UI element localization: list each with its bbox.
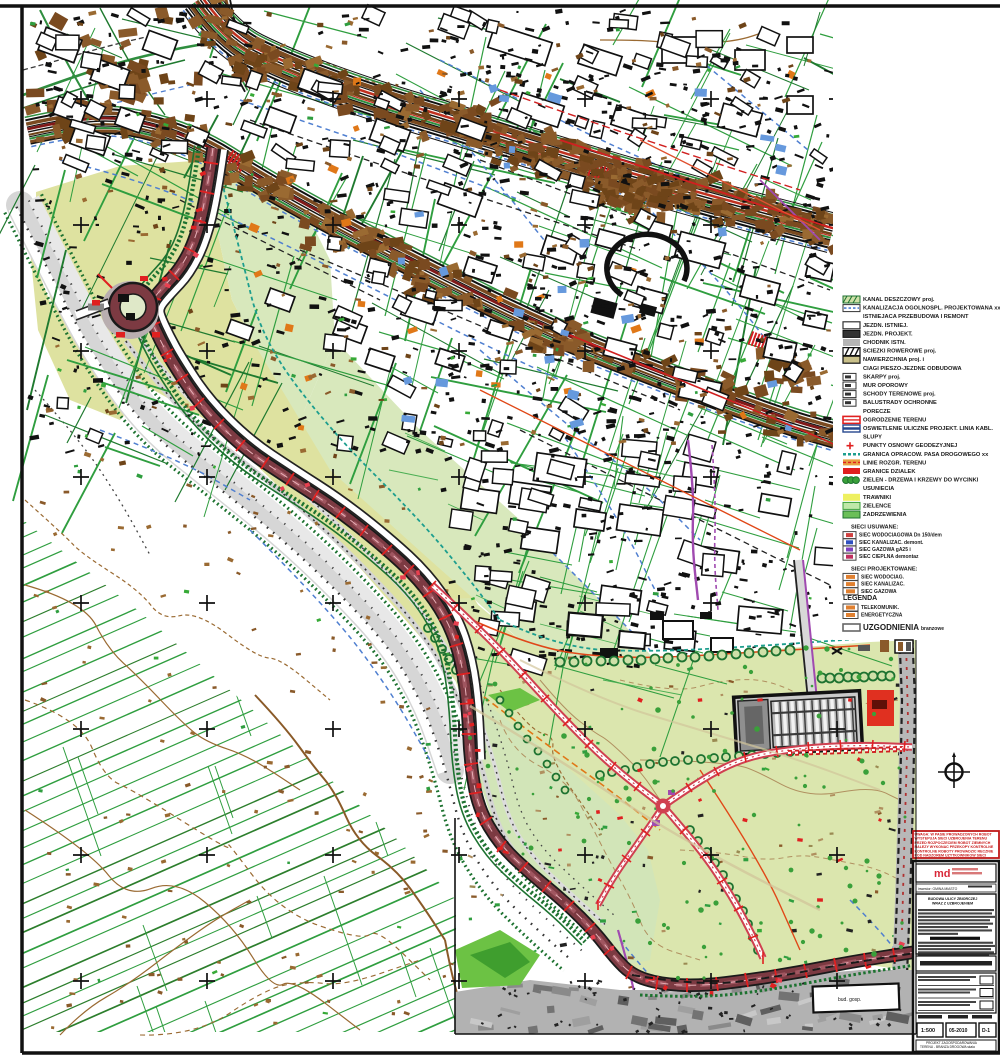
svg-text:BALUSTRADY OCHRONNE: BALUSTRADY OCHRONNE xyxy=(863,400,937,406)
svg-text:JEZDN. PROJEKT.: JEZDN. PROJEKT. xyxy=(863,331,913,337)
svg-text:SIECI PROJEKTOWANE:: SIECI PROJEKTOWANE: xyxy=(851,566,918,572)
svg-text:md: md xyxy=(934,868,951,880)
svg-text:CIAGI PIESZO-JEZDNE ODBUDOWA: CIAGI PIESZO-JEZDNE ODBUDOWA xyxy=(863,366,962,372)
svg-text:WRAZ Z UZBROJENIEM: WRAZ Z UZBROJENIEM xyxy=(932,902,973,906)
svg-text:ISTNIEJACA PRZEBUDOWA I REMONT: ISTNIEJACA PRZEBUDOWA I REMONT xyxy=(863,314,969,320)
svg-text:ZIELENCE: ZIELENCE xyxy=(863,503,891,509)
svg-text:CHODNIK ISTN.: CHODNIK ISTN. xyxy=(863,340,906,346)
svg-text:SLUPY: SLUPY xyxy=(863,435,882,441)
svg-text:LEGENDA: LEGENDA xyxy=(843,595,877,602)
svg-text:SIEC GAZOWA: SIEC GAZOWA xyxy=(861,589,897,595)
svg-text:SIEC KANALIZAC.: SIEC KANALIZAC. xyxy=(861,582,905,588)
svg-text:SIECI USUWANE:: SIECI USUWANE: xyxy=(851,525,899,531)
svg-text:SIEC GAZOWA gA25 i: SIEC GAZOWA gA25 i xyxy=(859,547,911,553)
svg-text:PORECZE: PORECZE xyxy=(863,409,891,415)
svg-text:GRANICA OPRACOW. PASA DROGOWEG: GRANICA OPRACOW. PASA DROGOWEGO xx xyxy=(863,452,989,458)
svg-text:SIEC CIEPLNA demontaz: SIEC CIEPLNA demontaz xyxy=(859,554,919,560)
svg-text:TERENU - BRANZA DROGOWA skala: TERENU - BRANZA DROGOWA skala xyxy=(920,1045,975,1049)
svg-text:BUDOWA ULICY ZBIORCZEJ: BUDOWA ULICY ZBIORCZEJ xyxy=(928,897,977,901)
svg-text:bud. gosp.: bud. gosp. xyxy=(838,997,861,1003)
svg-text:GRANICE DZIALEK: GRANICE DZIALEK xyxy=(863,469,916,475)
svg-text:SKARPY proj.: SKARPY proj. xyxy=(863,374,901,380)
svg-text:inwestor: GMINA MIASTO: inwestor: GMINA MIASTO xyxy=(918,887,958,891)
svg-text:LINIE ROZGR. TERENU: LINIE ROZGR. TERENU xyxy=(863,460,926,466)
svg-text:SIEC WODOCIAGOWA Dn 150/dem: SIEC WODOCIAGOWA Dn 150/dem xyxy=(859,533,942,539)
svg-text:TELEKOMUNIK.: TELEKOMUNIK. xyxy=(861,605,900,611)
svg-text:KANAL DESZCZOWY proj.: KANAL DESZCZOWY proj. xyxy=(863,297,935,303)
svg-text:PUNKTY OSNOWY GEODEZYJNEJ: PUNKTY OSNOWY GEODEZYJNEJ xyxy=(863,443,957,449)
svg-text:ZADRZEWIENIA: ZADRZEWIENIA xyxy=(863,512,907,518)
svg-text:MUR OPOROWY: MUR OPOROWY xyxy=(863,383,908,389)
svg-text:OSWIETLENIE ULICZNE PROJEKT. L: OSWIETLENIE ULICZNE PROJEKT. LINIA KABL. xyxy=(863,426,993,432)
svg-text:SIEC KANALIZAC. demont.: SIEC KANALIZAC. demont. xyxy=(859,540,924,546)
svg-text:OGRODZENIE TERENU: OGRODZENIE TERENU xyxy=(863,417,926,423)
svg-text:ENERGETYCZNA: ENERGETYCZNA xyxy=(861,613,903,619)
svg-text:JEZDN. ISTNIEJ.: JEZDN. ISTNIEJ. xyxy=(863,323,908,329)
svg-text:KANALIZACJA OGOLNOSPL. PROJEKT: KANALIZACJA OGOLNOSPL. PROJEKTOWANA xx xyxy=(863,306,1000,312)
svg-text:NAWIERZCHNIA proj. i: NAWIERZCHNIA proj. i xyxy=(863,357,925,363)
svg-text:05-2010: 05-2010 xyxy=(949,1028,968,1034)
svg-text:TRAWNIKI: TRAWNIKI xyxy=(863,495,892,501)
svg-text:POD NADZOREM UZYTKOWNIKOW SIEC: POD NADZOREM UZYTKOWNIKOW SIECI xyxy=(915,854,986,858)
svg-text:SIEC WODOCIAG.: SIEC WODOCIAG. xyxy=(861,574,905,580)
svg-text:SCIEZKI ROWEROWE proj.: SCIEZKI ROWEROWE proj. xyxy=(863,349,937,355)
svg-text:1:500: 1:500 xyxy=(921,1028,935,1034)
svg-text:D-1: D-1 xyxy=(982,1028,990,1034)
svg-text:SCHODY TERENOWE proj.: SCHODY TERENOWE proj. xyxy=(863,392,936,398)
svg-text:USUNIECIA: USUNIECIA xyxy=(863,486,894,492)
svg-text:ZIELEN - DRZEWA I KRZEWY DO WY: ZIELEN - DRZEWA I KRZEWY DO WYCINKI xyxy=(863,478,979,484)
